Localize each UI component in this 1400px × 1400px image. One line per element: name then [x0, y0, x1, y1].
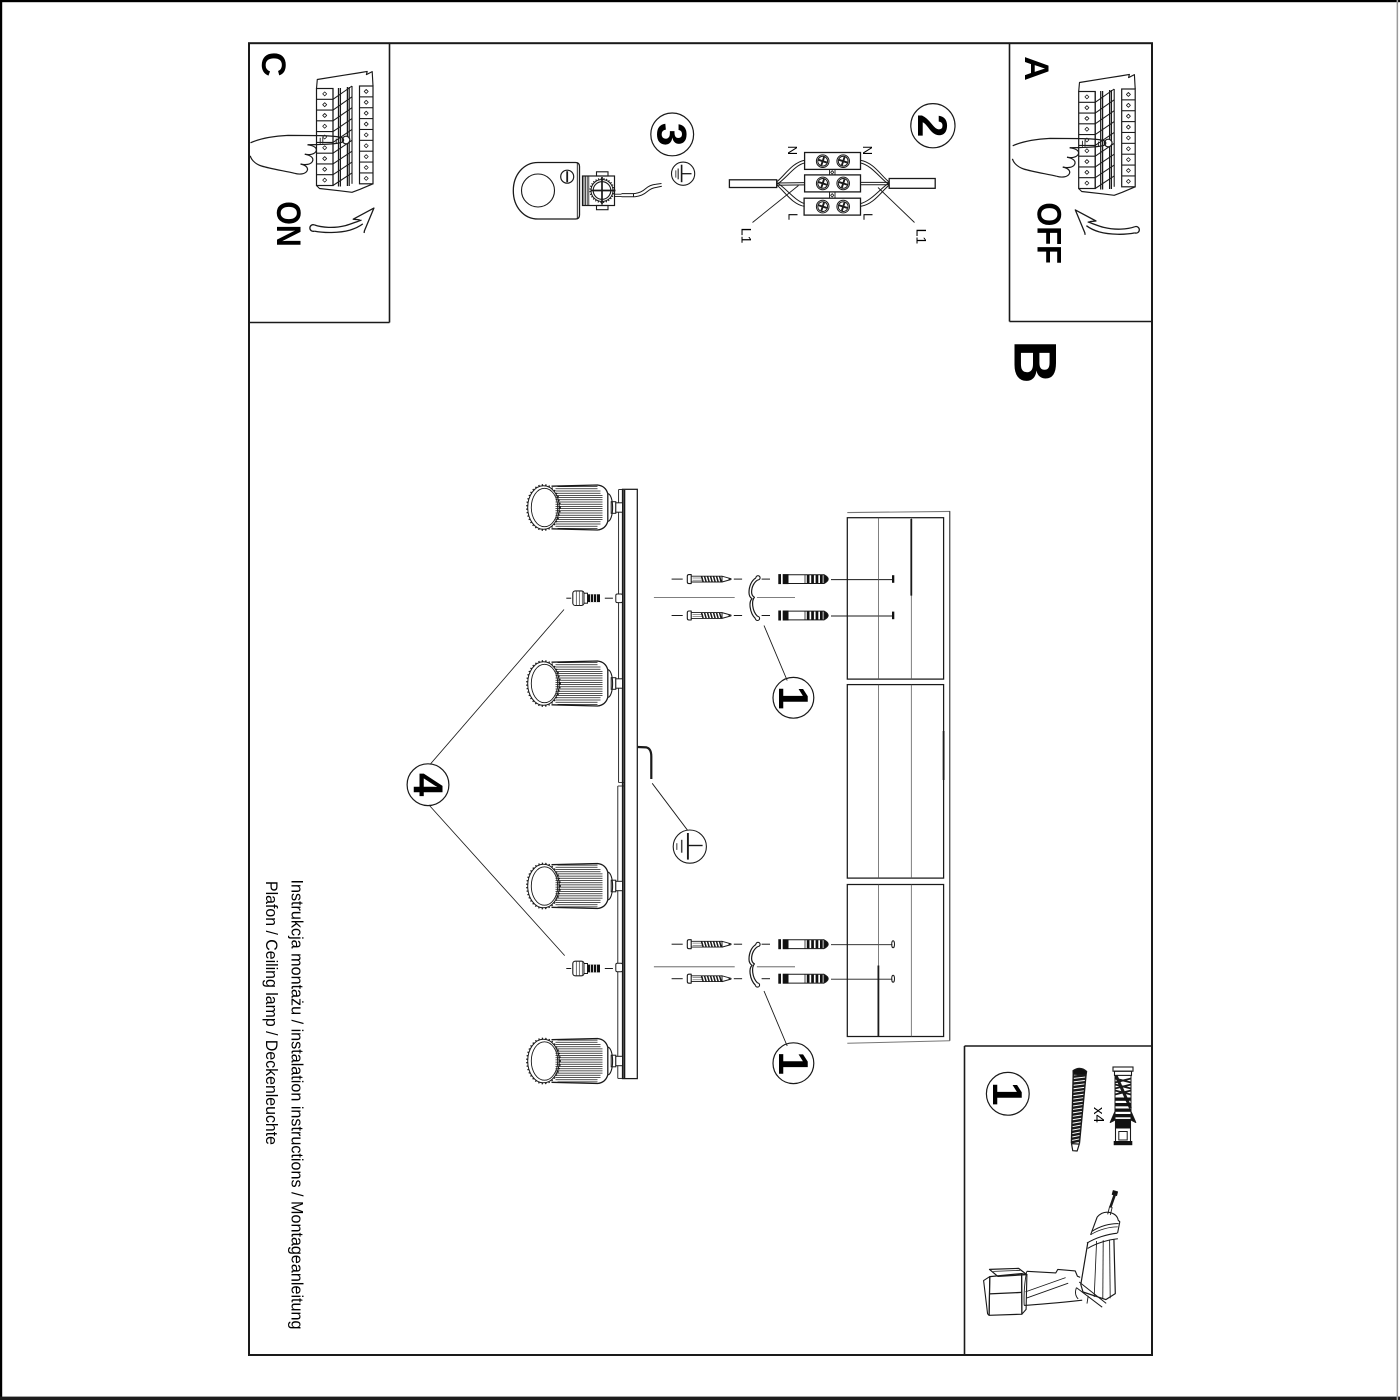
- svg-text:OFF: OFF: [1030, 202, 1068, 264]
- svg-text:N: N: [785, 146, 800, 155]
- svg-text:1: 1: [984, 1082, 1031, 1105]
- svg-text:Plafon / Ceiling lamp / Decken: Plafon / Ceiling lamp / Deckenleuchte: [262, 881, 281, 1145]
- svg-text:L: L: [861, 213, 876, 220]
- svg-text:L: L: [786, 213, 801, 220]
- svg-text:L1: L1: [913, 229, 929, 245]
- svg-text:Instrukcja montażu / instalati: Instrukcja montażu / instalation instruc…: [288, 880, 307, 1330]
- svg-text:L1: L1: [739, 228, 755, 244]
- svg-text:A: A: [1017, 56, 1055, 81]
- svg-text:C: C: [254, 52, 292, 77]
- svg-text:1: 1: [770, 1052, 817, 1075]
- svg-text:3: 3: [649, 123, 696, 146]
- svg-text:4: 4: [405, 773, 452, 797]
- svg-text:B: B: [1002, 340, 1069, 383]
- svg-text:x4: x4: [1090, 1107, 1107, 1123]
- svg-text:1: 1: [770, 686, 817, 709]
- svg-text:ON: ON: [269, 201, 307, 247]
- svg-text:N: N: [860, 146, 875, 155]
- svg-text:2: 2: [909, 114, 956, 137]
